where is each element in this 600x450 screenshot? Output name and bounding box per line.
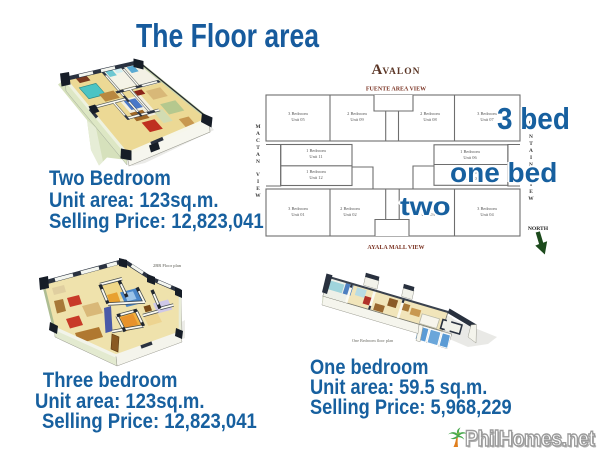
svg-text:2 Bedroom: 2 Bedroom xyxy=(420,111,440,116)
svg-text:2 Bedroom: 2 Bedroom xyxy=(347,111,367,116)
svg-text:NORTH: NORTH xyxy=(528,226,549,232)
svg-text:M: M xyxy=(255,124,260,130)
svg-text:Unit 01: Unit 01 xyxy=(291,212,304,217)
svg-text:Unit 12: Unit 12 xyxy=(309,175,322,180)
svg-text:T: T xyxy=(256,145,260,151)
svg-text:A: A xyxy=(256,152,260,158)
svg-text:I: I xyxy=(257,179,259,185)
svg-text:Unit 02: Unit 02 xyxy=(343,212,356,217)
svg-text:FUENTE AREA VIEW: FUENTE AREA VIEW xyxy=(366,87,426,93)
svg-text:E: E xyxy=(529,189,533,195)
svg-text:N: N xyxy=(256,159,260,165)
svg-text:3 Bedroom: 3 Bedroom xyxy=(288,206,308,211)
svg-text:2 Bedroom: 2 Bedroom xyxy=(340,206,360,211)
svg-text:Unit 09: Unit 09 xyxy=(350,117,364,122)
svg-text:W: W xyxy=(255,193,261,199)
svg-text:AYALA MALL VIEW: AYALA MALL VIEW xyxy=(367,245,424,251)
svg-text:W: W xyxy=(528,196,534,202)
svg-text:AVALON: AVALON xyxy=(372,62,421,78)
svg-text:T: T xyxy=(529,141,533,147)
svg-text:1 Bedroom: 1 Bedroom xyxy=(460,149,480,154)
svg-text:Unit 07: Unit 07 xyxy=(480,117,494,122)
svg-text:1 Bedroom: 1 Bedroom xyxy=(306,169,326,174)
svg-text:Unit 11: Unit 11 xyxy=(309,154,322,159)
svg-text:3 Bedroom: 3 Bedroom xyxy=(477,111,497,116)
svg-text:3 Bedroom: 3 Bedroom xyxy=(288,111,308,116)
svg-text:Unit 05: Unit 05 xyxy=(291,117,305,122)
svg-text:A: A xyxy=(256,131,260,137)
svg-text:1 Bedroom: 1 Bedroom xyxy=(306,148,326,153)
svg-text:E: E xyxy=(256,186,260,192)
svg-text:A: A xyxy=(529,148,533,154)
svg-text:Unit 08: Unit 08 xyxy=(423,117,437,122)
svg-text:Unit 04: Unit 04 xyxy=(480,212,494,217)
svg-text:V: V xyxy=(256,172,260,178)
svg-text:3 Bedroom: 3 Bedroom xyxy=(477,206,497,211)
svg-text:One Bedroom floor plan: One Bedroom floor plan xyxy=(352,338,394,343)
svg-text:2BR Floor plan: 2BR Floor plan xyxy=(153,263,182,268)
svg-text:C: C xyxy=(256,138,260,144)
